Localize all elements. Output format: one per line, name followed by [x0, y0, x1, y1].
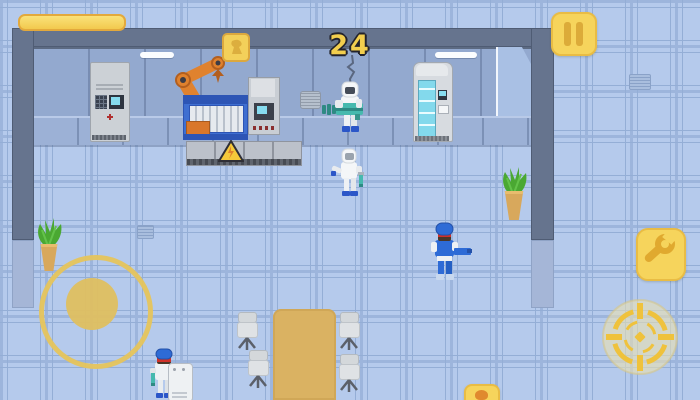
potted-plant	[34, 212, 64, 268]
cabinet-vents	[96, 82, 123, 90]
machine-console	[248, 77, 280, 135]
left-wall-end	[12, 240, 34, 308]
hazmat-scientist-with-gun	[320, 80, 378, 136]
vending-base	[415, 136, 449, 141]
plant-pot	[39, 244, 59, 271]
wall-light	[435, 52, 477, 58]
floor-grate	[629, 74, 651, 90]
machine-piston	[186, 121, 210, 135]
console-buttons	[253, 126, 275, 130]
score-counter: 24	[300, 30, 400, 61]
control-cabinet	[90, 62, 130, 142]
crate-item-icon	[224, 35, 248, 60]
cart-vents	[172, 390, 187, 398]
plant-pot	[503, 191, 525, 220]
game-screen: 24	[0, 0, 700, 400]
item-crate	[222, 33, 250, 62]
office-chair	[338, 354, 360, 396]
vending-lid	[416, 64, 448, 76]
joystick-knob[interactable]	[66, 278, 118, 330]
aim-button[interactable]	[600, 298, 680, 381]
cabinet-keypad	[95, 95, 107, 109]
right-wall	[531, 28, 554, 240]
console-top	[251, 79, 275, 97]
office-chair	[247, 350, 269, 392]
helmet-visor-icon	[345, 87, 355, 94]
blue-engineer	[424, 222, 472, 284]
console-screen	[254, 103, 274, 120]
cabinet-base	[92, 135, 126, 140]
meeting-table	[273, 309, 336, 400]
wrench-icon	[638, 230, 680, 275]
upgrade-button[interactable]	[636, 228, 686, 281]
vending-glass-door	[418, 80, 436, 137]
left-wall	[12, 28, 34, 240]
progress-bar	[18, 14, 126, 31]
vending-screen	[438, 90, 447, 100]
conveyor-tread	[187, 159, 301, 165]
machine-top-rail	[183, 95, 248, 104]
office-chair	[236, 312, 258, 354]
office-chair	[338, 312, 360, 354]
red-cross-icon	[107, 114, 113, 120]
cabinet-screen	[109, 95, 124, 109]
grenade-button[interactable]	[464, 384, 500, 400]
warning-sign-icon	[218, 140, 244, 162]
pause-button[interactable]	[551, 12, 597, 56]
conveyor-platform	[186, 141, 302, 166]
assembly-machine	[183, 95, 248, 140]
hazmat-scientist	[330, 148, 372, 198]
utility-cart	[168, 363, 193, 400]
right-wall-end	[531, 240, 554, 308]
floor-grate	[137, 225, 154, 239]
grenade-icon	[475, 390, 488, 400]
vending-slot	[438, 105, 449, 114]
vending-machine	[413, 62, 453, 142]
wall-vent-icon	[300, 91, 321, 109]
potted-plant	[498, 162, 530, 218]
helmet-visor-icon	[345, 153, 354, 160]
target-crosshair-icon	[600, 298, 680, 377]
